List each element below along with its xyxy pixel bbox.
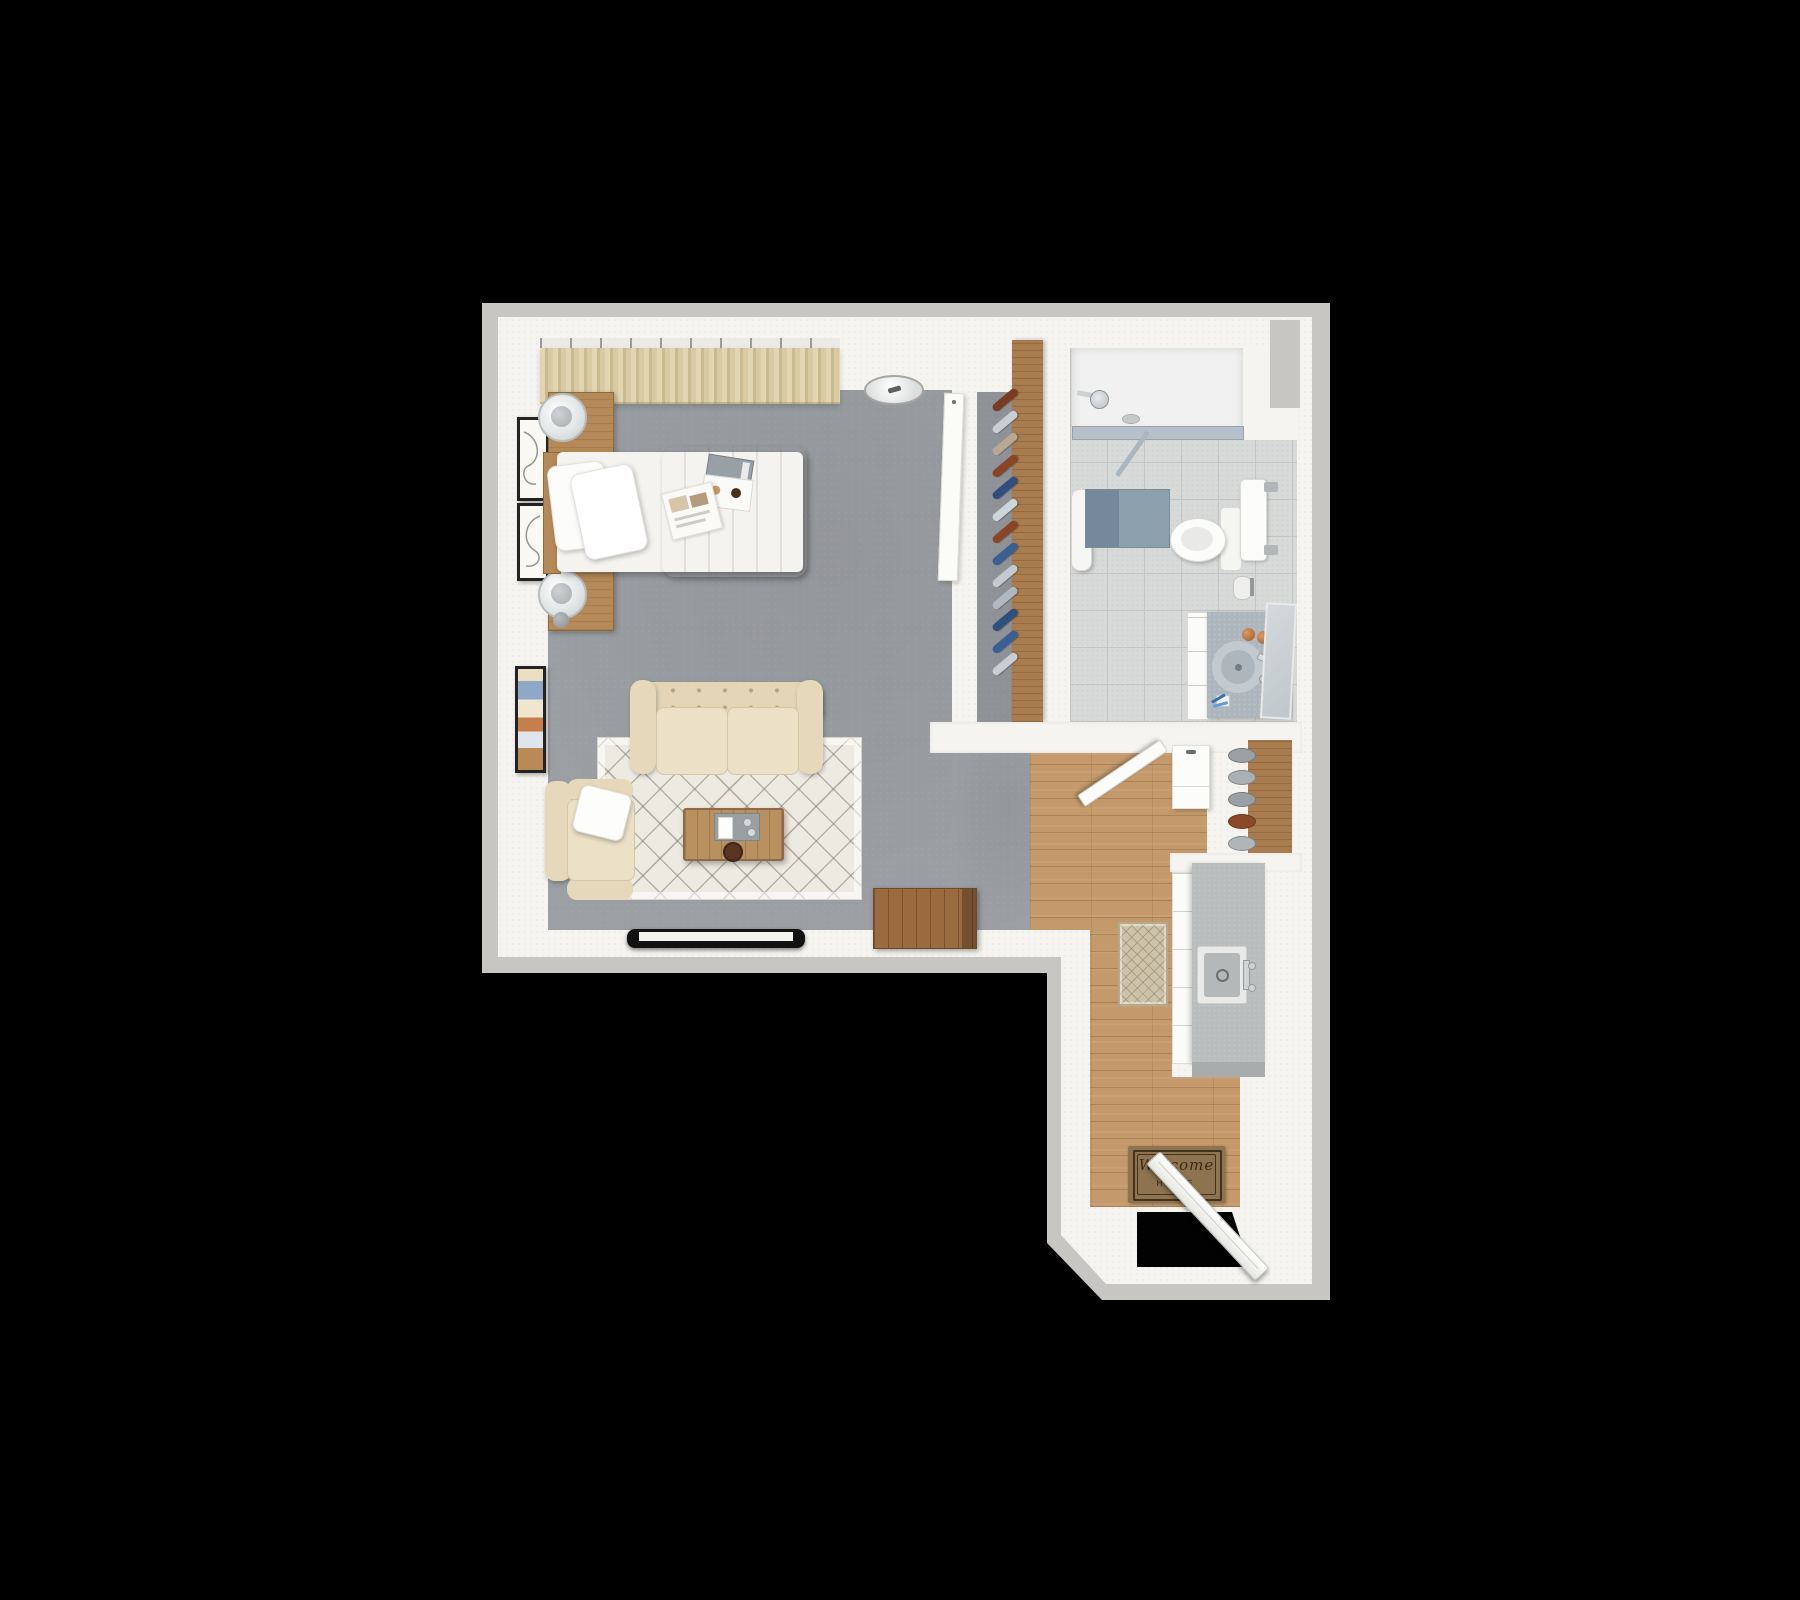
wall-art-frame-3 (515, 666, 546, 773)
ceiling-light-icon (864, 375, 924, 405)
magazine-photo-2 (689, 492, 708, 508)
bath-mat-shading (1086, 490, 1119, 547)
stacked-bowl (1228, 770, 1256, 785)
decor-sphere (553, 612, 569, 628)
magazine-photo-1 (668, 495, 689, 513)
kitchen-faucet-handle-1 (1248, 962, 1256, 970)
sofa-arm-right (797, 680, 823, 774)
tv-screen-edge (639, 932, 793, 941)
shower-drain (1122, 414, 1140, 424)
soap-dispenser-1 (1242, 628, 1255, 641)
lamp-shade (551, 583, 572, 604)
toilet-fitting-top (1264, 482, 1278, 492)
sofa-cushion-left (656, 707, 728, 775)
armchair-arm-bottom (567, 878, 633, 900)
vanity-sink (1212, 641, 1264, 693)
bath-mat (1085, 489, 1170, 548)
cabinet-handle-slot (1186, 750, 1196, 754)
vanity-cabinet (1187, 612, 1209, 720)
storage-crate (873, 888, 977, 949)
cup-2 (747, 828, 756, 837)
cabinet-seam (1173, 786, 1209, 787)
stacked-bowl (1228, 836, 1256, 851)
wall-tv (627, 929, 805, 948)
kitchen-faucet-handle-2 (1248, 984, 1256, 992)
crate-side-shading (962, 889, 976, 948)
clothes-hanger (991, 629, 1019, 654)
notepad (718, 817, 733, 839)
coffee-cup-icon (730, 488, 741, 499)
clothes-hanger (991, 409, 1019, 434)
curtain-track (540, 338, 840, 348)
clothes-hanger (991, 651, 1019, 676)
sofa-arm-left (630, 680, 656, 774)
lamp-shade (551, 406, 572, 427)
vanity-mirror (1260, 602, 1297, 719)
stacked-bowl (1228, 792, 1256, 807)
toilet-tank (1240, 479, 1267, 561)
closet-hanging-clothes (990, 396, 1030, 696)
toilet-seat-inner (1181, 527, 1213, 551)
stacked-bowl (1228, 748, 1256, 763)
door-handle-dot (952, 400, 956, 404)
sofa-cushion-right (727, 707, 799, 775)
kitchen-cabinet-face (1172, 872, 1194, 1064)
clothes-hanger (991, 519, 1019, 544)
kitchen-counter-front (1192, 1062, 1265, 1077)
clothes-hanger (991, 541, 1019, 566)
clothes-hanger (991, 475, 1019, 500)
runner-rug (1118, 922, 1168, 1006)
toilet-bowl (1170, 518, 1226, 562)
cup-1 (743, 818, 752, 827)
toilet-fitting-bottom (1264, 545, 1278, 555)
table-tray (714, 813, 760, 841)
clothes-hanger (991, 607, 1019, 632)
paper-holder-bracket (1250, 578, 1254, 596)
decor-bowl (723, 842, 743, 862)
table-lamp-top (538, 393, 587, 442)
sink-drain (1235, 664, 1242, 671)
clothes-hanger (991, 497, 1019, 522)
clothes-hanger (991, 585, 1019, 610)
coffee-table (683, 808, 784, 861)
pantry-shelf-bowls (1228, 748, 1258, 854)
shower-head-icon (1090, 390, 1109, 409)
laundry-cabinet (1172, 745, 1210, 809)
clothes-hanger (991, 431, 1019, 456)
ceiling-light-center (888, 385, 902, 393)
clothes-hanger (991, 453, 1019, 478)
floorplan-scene: Welcome HOME (0, 0, 1800, 1600)
shower-glass-partition (1072, 426, 1244, 440)
sink-drain-ring (1216, 969, 1229, 982)
structural-column (1270, 320, 1300, 408)
clothes-hanger (991, 563, 1019, 588)
stacked-bowl (1228, 814, 1256, 829)
kitchen-sink (1197, 946, 1247, 1004)
